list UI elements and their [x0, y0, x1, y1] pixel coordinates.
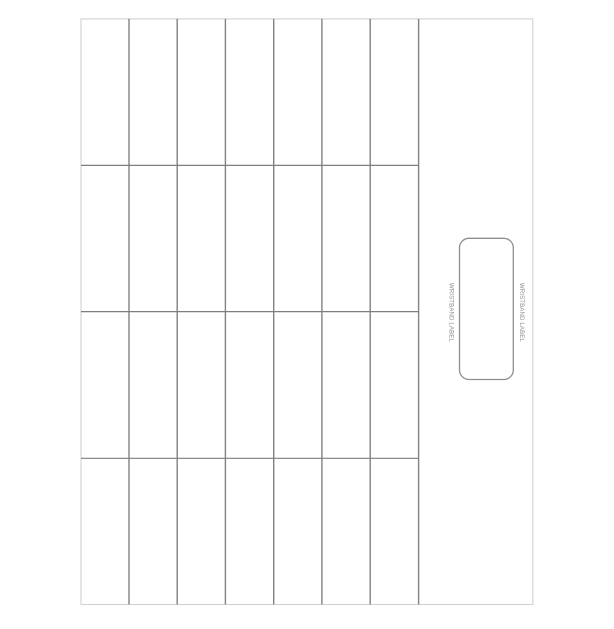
svg-text:WRISTBAND LABEL: WRISTBAND LABEL: [518, 283, 525, 343]
svg-text:WRISTBAND LABEL: WRISTBAND LABEL: [447, 283, 454, 343]
